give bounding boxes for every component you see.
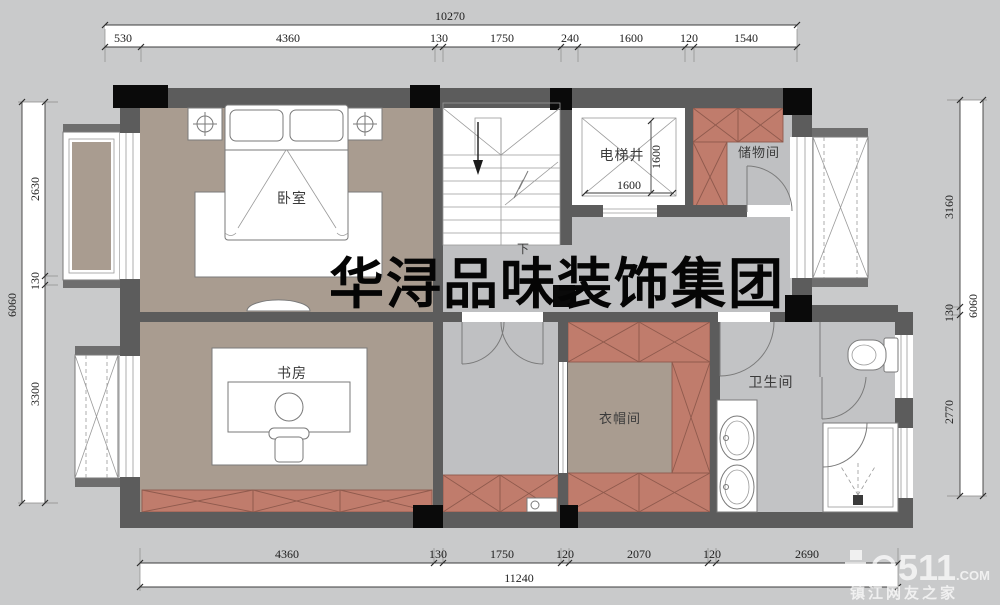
wall-top [120,88,812,108]
wall-bath-top [812,305,898,322]
dim-top-3: 1750 [490,31,514,45]
dim-left-0: 2630 [28,177,42,201]
dim-top-5: 1600 [619,31,643,45]
dim-bottom-1: 130 [429,547,447,561]
dim-left-total: 6060 [5,293,19,317]
dim-right-1: 130 [942,304,956,322]
dim-bottom-6: 2690 [795,547,819,561]
dim-top-1: 4360 [276,31,300,45]
dim-bottom-0: 4360 [275,547,299,561]
site-number: 511 [898,547,956,588]
dim-top-0: 530 [114,31,132,45]
elevator-opening [603,205,657,217]
elevator-shaft: 1600 1600 电梯井 [572,108,685,205]
dim-left-1: 130 [28,272,42,290]
site-tagline: 镇江网友之家 [850,584,958,602]
elevator-depth-dim: 1600 [649,145,663,169]
dim-top-4: 240 [561,31,579,45]
dim-bottom-5: 120 [703,547,721,561]
pillow-right [290,110,343,141]
cloakroom-label: 衣帽间 [599,411,641,426]
study-window [75,346,140,487]
wall-bottom [120,512,913,528]
dim-top-6: 120 [680,31,698,45]
vanity [717,400,757,512]
desk-chair [269,428,309,462]
bed [225,105,348,240]
floor-plan-page: 卧室 书房 下 [0,0,1000,605]
dim-right-0: 3160 [942,195,956,219]
bathroom-label: 卫生间 [749,374,794,390]
dim-top-7: 1540 [734,31,758,45]
dim-top-total: 10270 [435,9,465,23]
shower [823,423,898,512]
desk [228,382,350,432]
wall-study-hallway [433,322,443,512]
pillow-left [230,110,283,141]
bedroom-label: 卧室 [277,190,307,206]
study: 书房 [212,348,367,465]
watermark-text: 华浔品味装饰集团 [329,253,785,315]
bay-window-right [790,128,868,287]
dim-top-2: 130 [430,31,448,45]
dim-bottom-2: 1750 [490,547,514,561]
stairwell-floor [443,103,560,245]
storage-label: 储物间 [738,145,780,160]
study-label: 书房 [277,365,307,381]
elevator-width-dim: 1600 [617,178,641,192]
wall-left-b [120,279,140,356]
hallway-wardrobe [443,475,558,512]
study-bookcase [142,490,432,512]
wall-elevator-storage [685,108,693,217]
dim-bottom-4: 2070 [627,547,651,561]
elevator-label: 电梯井 [600,147,645,163]
dim-right-2: 2770 [942,400,956,424]
floor-plan: 卧室 书房 下 [0,0,1000,605]
dim-bottom-3: 120 [556,547,574,561]
site-tld: .COM [956,568,990,583]
dim-bottom-total: 11240 [504,571,534,585]
wall-stairs-elevator [560,108,572,245]
bay-window-left [63,124,140,288]
dim-right-total: 6060 [966,294,980,318]
toilet [848,338,898,372]
dim-left-2: 3300 [28,382,42,406]
